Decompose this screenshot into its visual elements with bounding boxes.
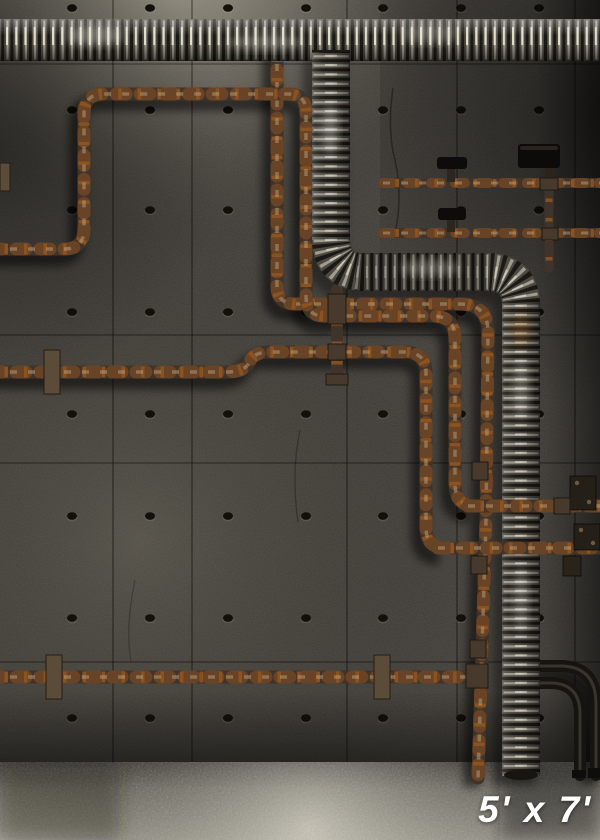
backdrop-illustration bbox=[0, 0, 600, 840]
pipe-wall-clamp bbox=[374, 655, 390, 699]
wall-bracket bbox=[0, 163, 10, 191]
form-tie-hole bbox=[145, 512, 155, 520]
pipe-wall-clamp bbox=[46, 655, 62, 699]
valve-handle bbox=[438, 208, 466, 220]
corrugated-duct-top bbox=[0, 27, 600, 50]
form-tie-hole bbox=[223, 410, 233, 418]
form-tie-hole bbox=[223, 614, 233, 622]
form-tie-hole bbox=[67, 614, 77, 622]
valve-handle bbox=[437, 157, 467, 169]
backdrop-photo: 5' x 7' bbox=[0, 0, 600, 840]
stub-end-flange bbox=[326, 374, 348, 385]
form-tie-hole bbox=[67, 410, 77, 418]
form-tie-hole bbox=[67, 512, 77, 520]
form-tie-hole bbox=[301, 410, 311, 418]
size-label: 5' x 7' bbox=[478, 789, 592, 831]
form-tie-hole bbox=[301, 4, 311, 12]
form-tie-hole bbox=[223, 512, 233, 520]
form-tie-hole bbox=[145, 614, 155, 622]
pipe-foot bbox=[588, 768, 600, 778]
form-tie-hole bbox=[145, 410, 155, 418]
form-tie-hole bbox=[301, 512, 311, 520]
pipe-wall-clamp bbox=[44, 350, 60, 394]
pipe-foot bbox=[572, 770, 586, 778]
form-tie-hole bbox=[301, 614, 311, 622]
rust-stain bbox=[512, 314, 530, 346]
